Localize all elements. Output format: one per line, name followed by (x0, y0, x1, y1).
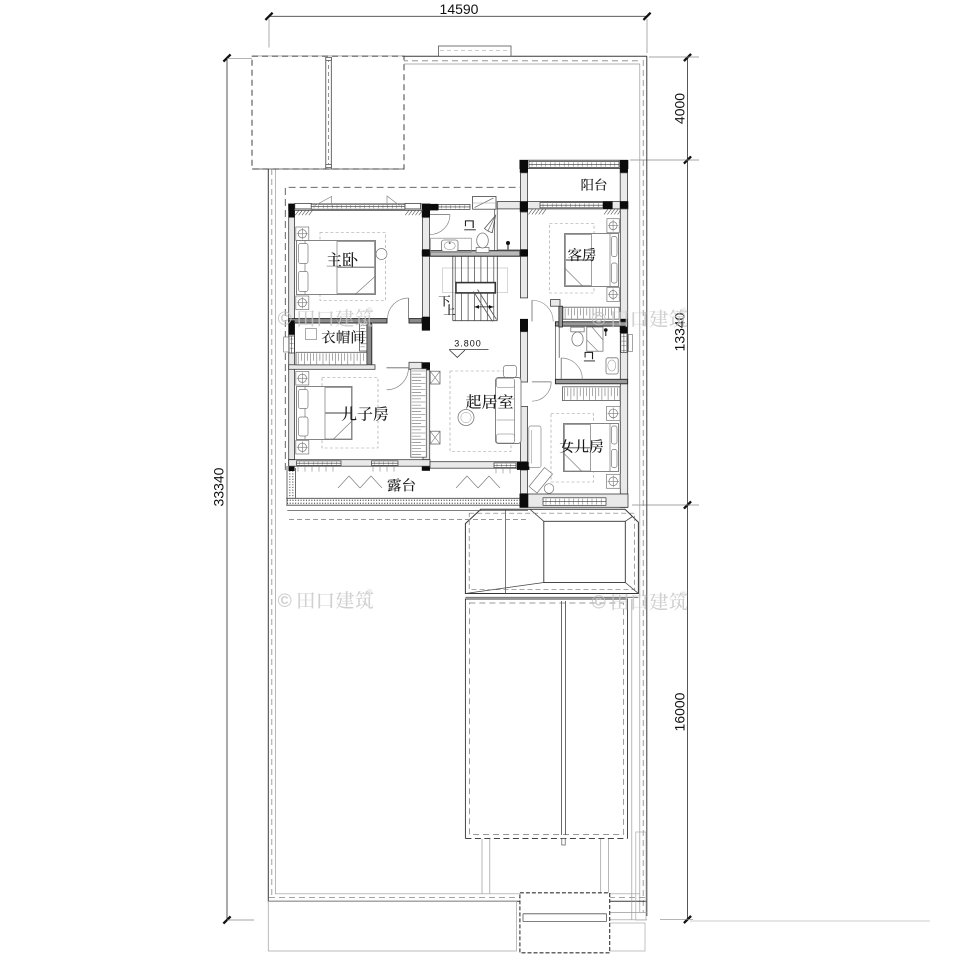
svg-text:©: © (592, 591, 607, 613)
svg-text:4000: 4000 (671, 93, 687, 124)
svg-text:®: ® (367, 588, 373, 597)
svg-text:14590: 14590 (440, 1, 479, 17)
svg-text:®: ® (681, 307, 687, 316)
svg-text:33340: 33340 (210, 467, 226, 506)
svg-text:3.800: 3.800 (454, 339, 482, 349)
svg-text:©: © (278, 308, 293, 330)
svg-text:©: © (278, 590, 293, 612)
svg-text:©: © (592, 308, 607, 330)
svg-text:®: ® (367, 306, 373, 315)
svg-text:16000: 16000 (671, 692, 687, 731)
svg-text:®: ® (681, 590, 687, 599)
